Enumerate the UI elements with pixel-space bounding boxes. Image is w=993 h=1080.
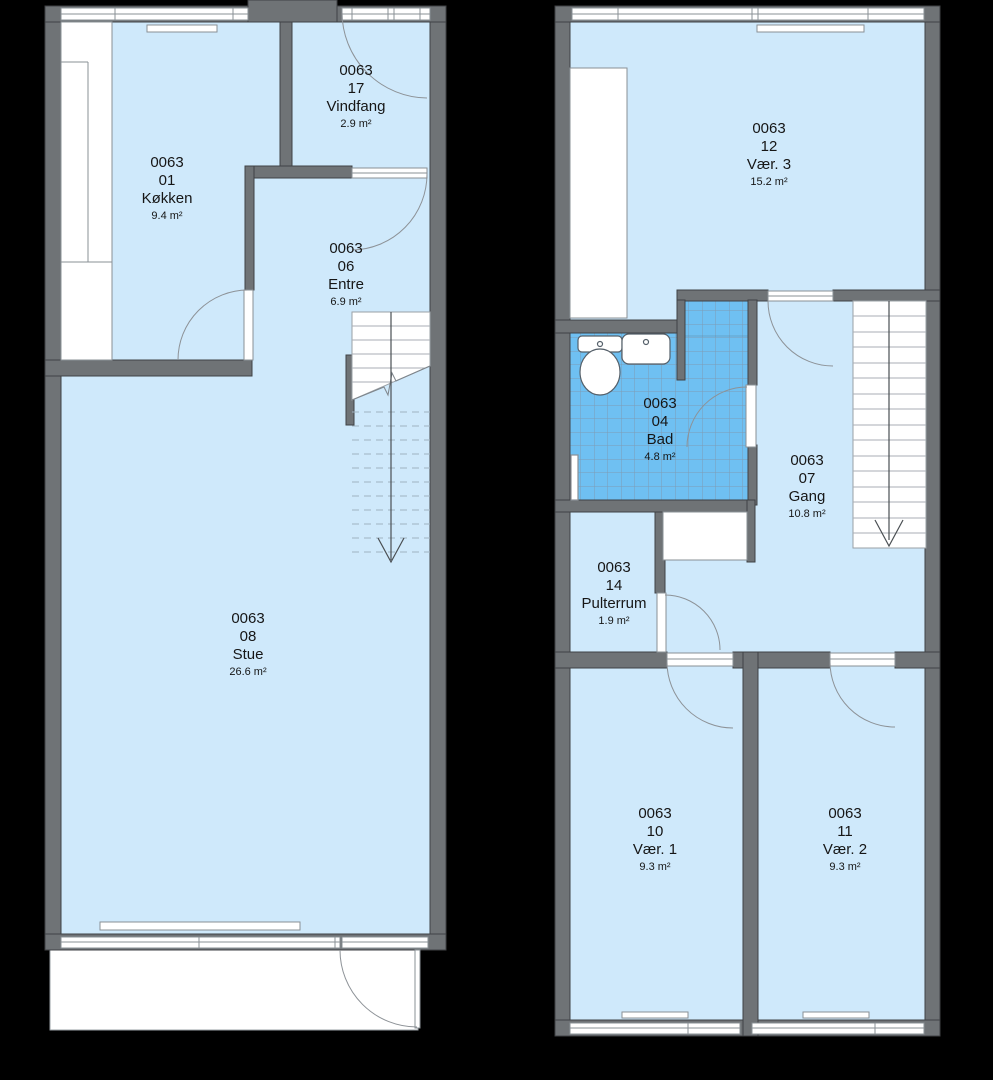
wall: [555, 320, 685, 333]
wall: [743, 652, 758, 1036]
door-leaf: [746, 385, 756, 447]
door-leaf: [415, 950, 420, 1028]
radiator: [757, 25, 864, 32]
floorplan-canvas: 0063 01 Køkken 9.4 m² 0063 17 Vindfang 2…: [0, 0, 993, 1080]
radiator: [803, 1012, 869, 1018]
wardrobe: [570, 68, 627, 318]
radiator: [100, 922, 300, 930]
wall: [555, 500, 755, 512]
terrace: [50, 950, 418, 1030]
wall: [895, 652, 940, 668]
wall: [280, 22, 292, 170]
wall: [748, 445, 757, 505]
radiator: [147, 25, 217, 32]
wall: [245, 166, 352, 178]
wall: [748, 300, 757, 385]
wall: [833, 290, 940, 301]
toilet-bowl-icon: [580, 349, 620, 395]
wall: [555, 6, 570, 1036]
door-leaf: [244, 290, 253, 360]
sink-icon: [622, 334, 670, 364]
wall: [677, 300, 685, 380]
wall: [45, 360, 252, 376]
stairs-down: [853, 301, 926, 548]
floorplan-drawing: [0, 0, 993, 1080]
kitchen-counter: [61, 22, 112, 360]
closet: [663, 512, 747, 560]
wall: [555, 652, 667, 668]
plan-upper-floor: [555, 6, 940, 1036]
shower-fitting: [571, 455, 578, 500]
wall: [45, 6, 61, 950]
wall: [677, 290, 768, 301]
door-leaf: [657, 593, 666, 652]
wall: [248, 0, 337, 22]
wall: [747, 500, 755, 562]
wall: [430, 6, 446, 950]
plan-ground-floor: [45, 0, 446, 1030]
radiator: [622, 1012, 688, 1018]
wall: [245, 166, 254, 290]
wall: [925, 6, 940, 1036]
